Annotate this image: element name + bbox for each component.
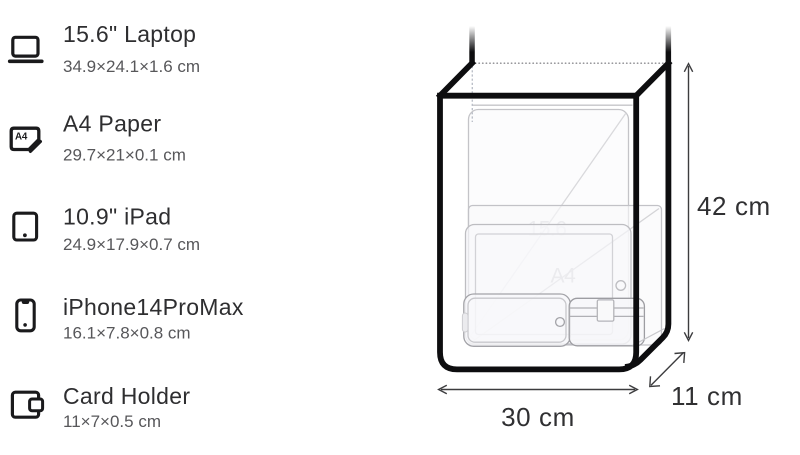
svg-text:Card Holder: Card Holder — [63, 383, 190, 409]
svg-text:15.6" Laptop: 15.6" Laptop — [63, 21, 196, 47]
svg-text:30 cm: 30 cm — [501, 402, 575, 432]
svg-text:10.9" iPad: 10.9" iPad — [63, 204, 171, 230]
svg-text:iPhone14ProMax: iPhone14ProMax — [63, 294, 244, 320]
svg-text:A4: A4 — [15, 131, 28, 142]
svg-text:42 cm: 42 cm — [697, 191, 771, 221]
svg-text:A4 Paper: A4 Paper — [63, 111, 161, 137]
svg-text:29.7×21×0.1 cm: 29.7×21×0.1 cm — [63, 146, 186, 165]
svg-text:16.1×7.8×0.8 cm: 16.1×7.8×0.8 cm — [63, 323, 191, 342]
svg-text:11×7×0.5 cm: 11×7×0.5 cm — [63, 412, 161, 431]
svg-text:11 cm: 11 cm — [671, 381, 743, 411]
svg-text:34.9×24.1×1.6 cm: 34.9×24.1×1.6 cm — [63, 57, 200, 76]
svg-text:24.9×17.9×0.7 cm: 24.9×17.9×0.7 cm — [63, 235, 200, 254]
